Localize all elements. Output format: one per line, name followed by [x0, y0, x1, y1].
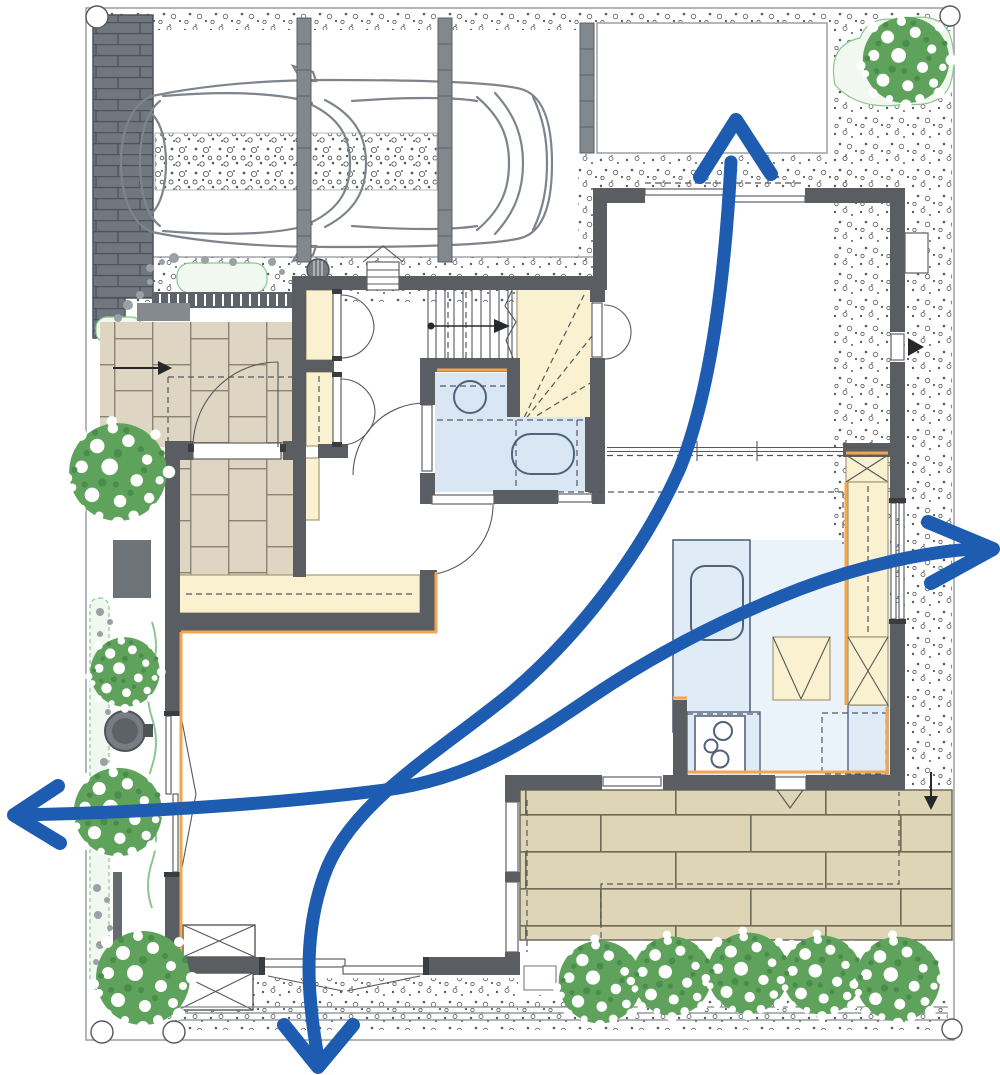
step-stone: [524, 966, 556, 990]
paver: [137, 303, 190, 321]
bay-unit: [905, 233, 928, 273]
gas-stove: [695, 716, 745, 772]
closet: [306, 290, 334, 360]
stone-slab: [113, 540, 151, 598]
hedge: [177, 263, 267, 293]
upper-floor-outline: [597, 23, 827, 153]
tree: [849, 930, 947, 1028]
floor-plan-canvas: [0, 0, 1000, 1075]
tree: [62, 416, 175, 529]
floor-plan-figure: [0, 0, 1000, 1075]
kitchen-table: [773, 637, 830, 700]
tree: [702, 927, 796, 1021]
tree: [85, 632, 166, 713]
tree: [777, 930, 869, 1022]
tree: [856, 10, 956, 110]
gravel-tire-strip: [155, 133, 437, 190]
boundary-pin: [91, 1021, 113, 1043]
tree: [89, 924, 198, 1033]
closet: [306, 372, 334, 446]
kitchen-counter: [848, 705, 888, 775]
boundary-pin: [86, 6, 108, 28]
shoe-cabinet: [305, 458, 319, 520]
brick-terrace: [520, 790, 952, 940]
washbasin-room: [435, 373, 507, 417]
winder-stair: [517, 288, 593, 430]
entrance-doma-tiles: [180, 447, 295, 577]
brick-wall: [93, 15, 153, 298]
boundary-pin: [942, 1019, 962, 1039]
boundary-pin: [940, 6, 960, 26]
boundary-pin: [163, 1021, 185, 1043]
